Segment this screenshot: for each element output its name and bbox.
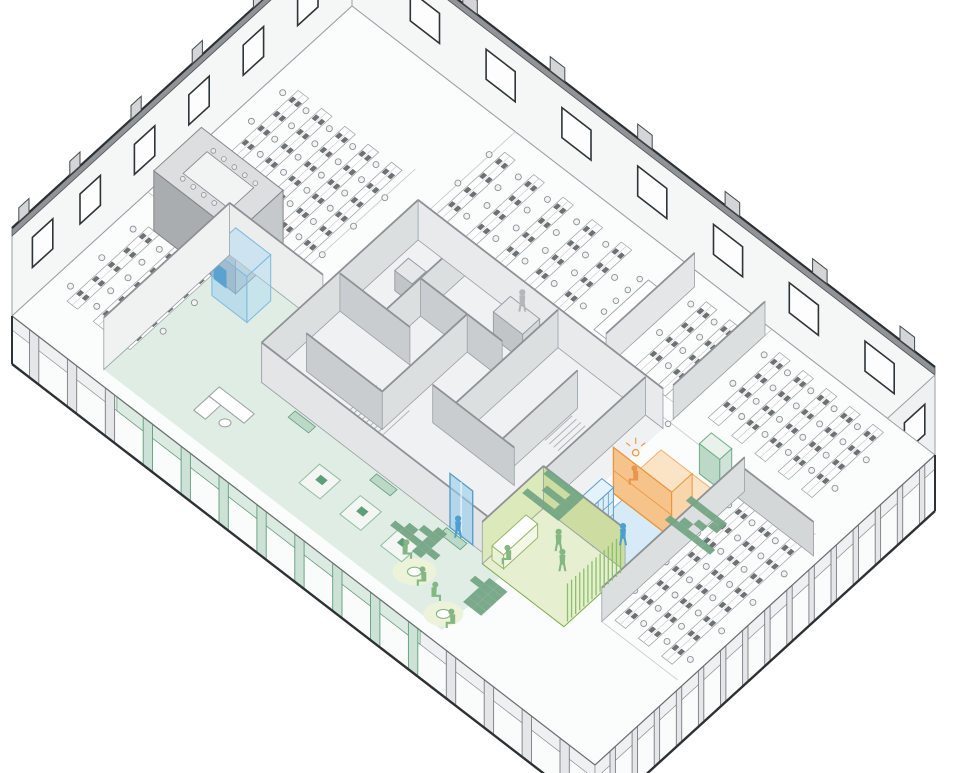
office-chair xyxy=(108,288,114,294)
office-chair xyxy=(191,300,197,306)
conference-chair xyxy=(232,165,237,170)
office-chair xyxy=(703,563,709,569)
office-chair xyxy=(854,424,860,430)
cut-pier xyxy=(831,545,836,606)
cut-pier xyxy=(721,646,726,707)
person-head xyxy=(519,289,525,295)
cut-pier xyxy=(143,417,152,472)
cut-pier xyxy=(257,505,266,560)
cut-pier xyxy=(743,626,748,687)
office-chair xyxy=(289,123,295,129)
office-chair xyxy=(863,457,869,463)
cut-pier xyxy=(853,525,858,586)
office-chair xyxy=(524,207,530,213)
person-head xyxy=(455,515,461,521)
office-chair xyxy=(665,363,671,369)
cut-pier xyxy=(765,605,770,666)
office-chair xyxy=(730,380,736,386)
office-chair xyxy=(94,303,100,309)
meeting-chair xyxy=(637,276,643,282)
cut-pier xyxy=(484,680,493,735)
office-chair xyxy=(603,241,609,247)
office-chair xyxy=(342,190,348,196)
office-chair xyxy=(382,195,388,201)
office-chair xyxy=(486,152,492,158)
office-chair xyxy=(750,599,756,605)
conference-chair xyxy=(211,148,216,153)
cut-pier xyxy=(295,534,304,589)
office-chair xyxy=(280,90,286,96)
office-chair xyxy=(741,566,747,572)
office-chair xyxy=(840,439,846,445)
office-chair xyxy=(739,413,745,419)
cut-pier xyxy=(522,709,531,764)
office-chair xyxy=(318,172,324,178)
office-chair xyxy=(515,174,521,180)
office-chair xyxy=(776,416,782,422)
office-chair xyxy=(350,144,356,150)
office-chair xyxy=(800,434,806,440)
conference-chair xyxy=(191,184,196,189)
office-chair xyxy=(295,154,301,160)
office-chair xyxy=(695,610,701,616)
office-chair xyxy=(287,201,293,207)
office-chair xyxy=(686,577,692,583)
person-head xyxy=(559,549,565,555)
conference-chair xyxy=(221,157,226,162)
office-chair xyxy=(785,449,791,455)
office-chair xyxy=(793,403,799,409)
office-chair xyxy=(753,398,759,404)
cut-pier xyxy=(408,621,417,676)
office-chair xyxy=(664,638,670,644)
cut-pier xyxy=(632,726,637,773)
office-chair xyxy=(551,281,557,287)
conference-chair xyxy=(212,201,217,206)
office-chair xyxy=(358,177,364,183)
office-chair xyxy=(735,535,741,541)
office-chair xyxy=(758,553,764,559)
office-chair xyxy=(711,319,717,325)
office-chair xyxy=(464,213,470,219)
office-chair xyxy=(327,205,333,211)
office-chair xyxy=(823,452,829,458)
office-chair xyxy=(710,595,716,601)
office-chair xyxy=(697,334,703,340)
office-chair xyxy=(351,223,357,229)
office-chair xyxy=(296,234,302,240)
corridor-chair xyxy=(665,421,671,427)
cut-pier xyxy=(676,686,681,747)
office-chair xyxy=(571,270,577,276)
cut-pier xyxy=(698,666,703,727)
office-chair xyxy=(281,169,287,175)
office-chair xyxy=(160,328,166,334)
office-chair xyxy=(772,538,778,544)
office-chair xyxy=(304,187,310,193)
conference-chair xyxy=(242,173,247,178)
office-chair xyxy=(817,421,823,427)
office-chair xyxy=(762,431,768,437)
cut-pier xyxy=(105,388,114,443)
cut-pier xyxy=(333,563,342,618)
person-head xyxy=(620,523,626,529)
round-table xyxy=(408,567,422,576)
office-chair xyxy=(553,230,559,236)
cut-pier xyxy=(67,359,76,414)
office-chair xyxy=(688,301,694,307)
cut-pier xyxy=(897,484,902,545)
cut-pier xyxy=(371,592,380,647)
office-chair xyxy=(832,485,838,491)
office-chair xyxy=(326,126,332,132)
office-chair xyxy=(125,275,131,281)
office-chair xyxy=(542,247,548,253)
office-chair xyxy=(248,118,254,124)
cut-pier xyxy=(809,565,814,626)
office-chair xyxy=(303,108,309,114)
office-chair xyxy=(749,520,755,526)
axonometric-floor-plan-illustration xyxy=(0,0,960,773)
cut-pier xyxy=(919,464,924,525)
office-chair xyxy=(513,225,519,231)
cut-pier xyxy=(219,475,228,530)
office-chair xyxy=(312,141,318,147)
meeting-chair xyxy=(625,287,631,293)
office-chair xyxy=(310,219,316,225)
office-chair xyxy=(687,656,693,662)
office-chair xyxy=(484,202,490,208)
office-chair xyxy=(580,303,586,309)
office-chair xyxy=(719,628,725,634)
office-chair xyxy=(522,258,528,264)
office-chair xyxy=(493,236,499,242)
person-head xyxy=(420,566,426,572)
office-chair xyxy=(257,151,263,157)
cut-pier xyxy=(875,505,880,566)
office-chair xyxy=(455,180,461,186)
office-chair xyxy=(544,196,550,202)
office-chair xyxy=(808,388,814,394)
cut-pier xyxy=(30,330,39,385)
office-chair xyxy=(373,162,379,168)
person-head xyxy=(403,539,409,545)
office-chair xyxy=(319,252,325,258)
person-head xyxy=(555,529,561,535)
office-chair xyxy=(781,571,787,577)
office-chair xyxy=(656,330,662,336)
cut-pier xyxy=(181,446,190,501)
office-chair xyxy=(139,259,145,265)
office-chair xyxy=(718,548,724,554)
office-chair xyxy=(655,605,661,611)
conference-chair xyxy=(180,176,185,181)
office-chair xyxy=(641,621,647,627)
office-chair xyxy=(612,274,618,280)
office-chair xyxy=(130,226,136,232)
office-chair xyxy=(272,136,278,142)
office-chair xyxy=(761,352,767,358)
office-chair xyxy=(727,581,733,587)
person-head xyxy=(448,609,454,615)
office-chair xyxy=(68,283,74,289)
round-table xyxy=(436,609,450,618)
office-chair xyxy=(574,219,580,225)
office-chair xyxy=(770,385,776,391)
conference-chair xyxy=(201,193,206,198)
office-chair xyxy=(680,348,686,354)
cut-pier xyxy=(787,585,792,646)
cut-pier xyxy=(654,706,659,767)
coffee-table xyxy=(219,419,231,427)
office-chair xyxy=(678,623,684,629)
office-chair xyxy=(582,252,588,258)
meeting-chair xyxy=(601,309,607,315)
cut-pier xyxy=(446,651,455,706)
person-head xyxy=(432,582,438,588)
office-chair xyxy=(99,255,105,261)
office-chair xyxy=(156,246,162,252)
person-head xyxy=(504,545,510,551)
office-chair xyxy=(784,370,790,376)
meeting-chair xyxy=(613,298,619,304)
office-chair xyxy=(809,467,815,473)
conference-chair xyxy=(253,181,258,186)
office-chair xyxy=(495,185,501,191)
office-chair xyxy=(335,159,341,165)
office-chair xyxy=(831,406,837,412)
person-head xyxy=(631,465,637,471)
office-chair xyxy=(672,592,678,598)
floor-plan-scene xyxy=(0,0,960,773)
